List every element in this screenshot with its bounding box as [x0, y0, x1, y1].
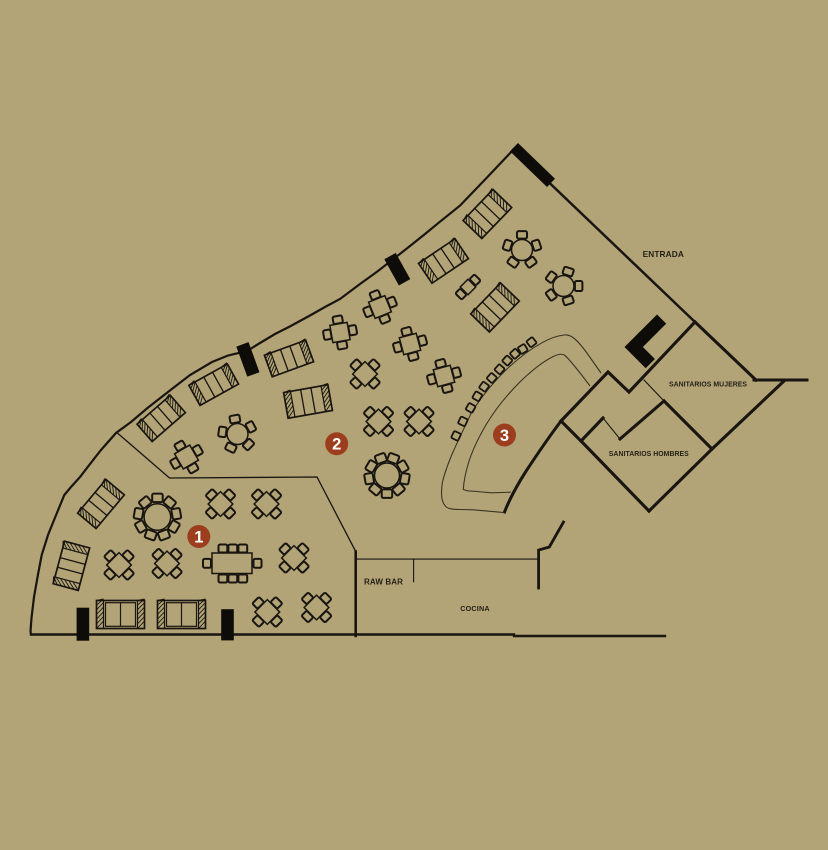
svg-text:ENTRADA: ENTRADA	[643, 249, 684, 259]
svg-text:2: 2	[332, 436, 341, 454]
svg-text:RAW BAR: RAW BAR	[364, 578, 403, 587]
svg-text:1: 1	[194, 528, 203, 546]
svg-text:SANITARIOS MUJERES: SANITARIOS MUJERES	[669, 381, 747, 388]
svg-text:COCINA: COCINA	[460, 604, 490, 613]
svg-text:SANITARIOS HOMBRES: SANITARIOS HOMBRES	[609, 451, 689, 458]
svg-text:3: 3	[500, 427, 509, 445]
